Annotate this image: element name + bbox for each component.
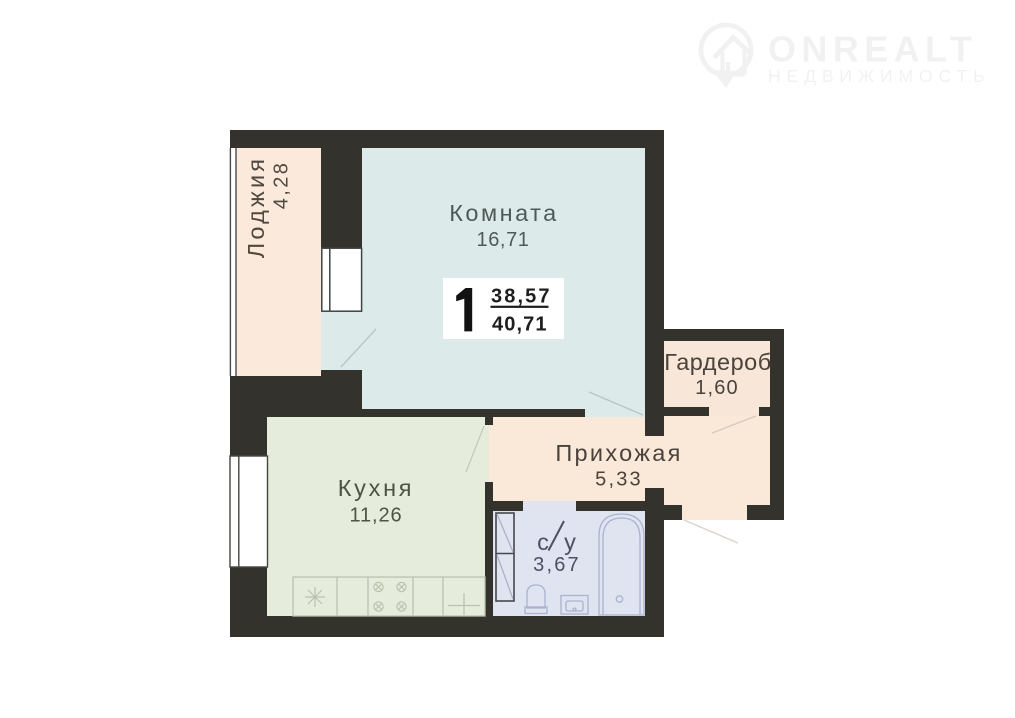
- svg-text:НЕДВИЖИМОСТЬ: НЕДВИЖИМОСТЬ: [768, 66, 990, 86]
- svg-text:с: с: [537, 529, 549, 555]
- svg-text:у: у: [564, 529, 576, 555]
- svg-text:Комната: Комната: [449, 200, 559, 226]
- svg-text:16,71: 16,71: [476, 229, 529, 251]
- svg-text:38,57: 38,57: [491, 286, 552, 308]
- svg-text:40,71: 40,71: [492, 313, 548, 335]
- svg-text:5,33: 5,33: [595, 469, 643, 491]
- svg-text:11,26: 11,26: [349, 505, 402, 527]
- svg-text:3,67: 3,67: [533, 554, 581, 576]
- svg-text:ONREALT: ONREALT: [768, 29, 977, 70]
- svg-text:1,60: 1,60: [695, 377, 739, 399]
- svg-text:4,28: 4,28: [271, 161, 293, 210]
- svg-text:Кухня: Кухня: [338, 475, 414, 501]
- svg-text:Гардероб: Гардероб: [664, 349, 771, 375]
- svg-text:Лоджия: Лоджия: [243, 156, 269, 258]
- svg-text:Прихожая: Прихожая: [555, 440, 682, 466]
